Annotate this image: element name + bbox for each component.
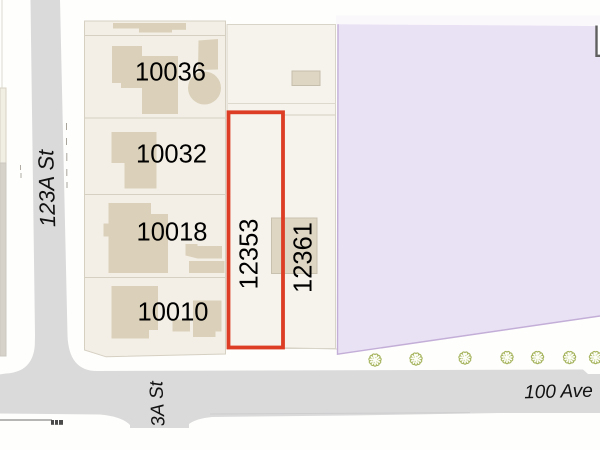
svg-text:123A St: 123A St [33,149,60,228]
svg-text:12353: 12353 [236,219,264,290]
svg-text:10036: 10036 [135,59,206,87]
svg-text:10010: 10010 [138,299,209,327]
svg-text:10018: 10018 [137,219,208,247]
svg-text:12361: 12361 [290,222,318,293]
svg-text:100 Ave: 100 Ave [524,381,593,404]
svg-text:10032: 10032 [136,141,207,169]
